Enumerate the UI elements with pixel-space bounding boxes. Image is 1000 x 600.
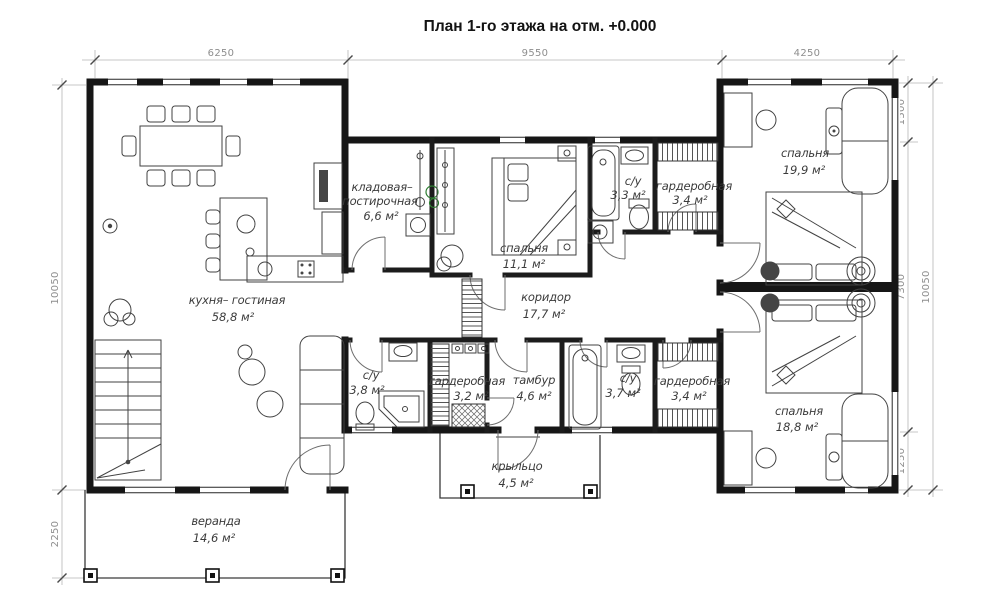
furniture-bedroom-188 [724,289,888,488]
room-area: 11,1 м² [503,257,546,271]
furniture-corridor [462,279,482,337]
room-label-corridor: коридор 17,7 м² [521,290,571,321]
room-label-bedroom-11: спальня 11,1 м² [500,241,548,271]
room-area: 14,6 м² [193,531,236,545]
room-area: 17,7 м² [523,307,566,321]
room-name: крыльцо [492,459,543,473]
room-label-veranda: веранда 14,6 м² [191,514,240,545]
room-area: 4,5 м² [498,476,534,490]
room-area: 3,2 м² [453,389,489,403]
room-name: с/у [363,368,380,382]
dimension-lines: 6250 9550 4250 10050 2250 1500 7300 1250… [50,48,943,585]
room-label-porch: крыльцо 4,5 м² [492,459,543,490]
dim-left-2: 2250 [50,521,61,548]
walls [90,82,895,490]
room-name: с/у [625,174,642,188]
dim-left-1: 10050 [50,271,61,304]
room-label-wc-33: с/у 3,3 м² [610,174,646,202]
room-area: 4,6 м² [516,389,552,403]
room-label-pantry: кладовая– постирочная 6,6 м² [342,180,418,223]
room-name: гардеробная [429,374,505,388]
room-area: 3,4 м² [671,389,707,403]
room-name: спальня [781,146,829,160]
room-area: 3,8 м² [349,383,385,397]
furniture-stairs [95,340,161,480]
room-name: кухня– гостиная [189,293,286,307]
furniture-bedroom-199 [724,88,888,285]
room-name: тамбур [513,373,555,387]
room-name: спальня [775,404,823,418]
room-name: коридор [521,290,571,304]
room-area: 19,9 м² [783,163,826,177]
room-area: 3,4 м² [672,193,708,207]
room-area: 58,8 м² [212,310,255,324]
room-name: веранда [191,514,240,528]
room-name: гардеробная [654,374,730,388]
room-area: 18,8 м² [776,420,819,434]
dim-top-1: 6250 [208,48,235,59]
room-name: постирочная [342,194,418,208]
room-label-bedroom-188: спальня 18,8 м² [775,404,823,434]
room-area: 6,6 м² [363,209,399,223]
floor-plan-canvas: План 1-го этажа на отм. +0.000 6250 9550… [0,0,1000,600]
room-area: 3,7 м² [605,386,641,400]
room-label-tambour: тамбур 4,6 м² [513,373,555,403]
dim-right-total: 10050 [921,270,932,303]
room-label-wc-37: с/у 3,7 м² [605,371,641,400]
room-name: с/у [620,371,637,385]
furniture-kitchen-living [103,106,344,474]
room-label-bedroom-199: спальня 19,9 м² [781,146,829,177]
dim-top-2: 9550 [522,48,549,59]
room-label-kitchen-living: кухня– гостиная 58,8 м² [189,293,286,324]
page-title: План 1-го этажа на отм. +0.000 [424,18,657,35]
room-name: гардеробная [656,179,732,193]
room-name: кладовая– [351,180,412,194]
dim-top-3: 4250 [794,48,821,59]
room-name: спальня [500,241,548,255]
room-area: 3,3 м² [610,188,646,202]
floor-plan-page: План 1-го этажа на отм. +0.000 6250 9550… [0,0,1000,600]
